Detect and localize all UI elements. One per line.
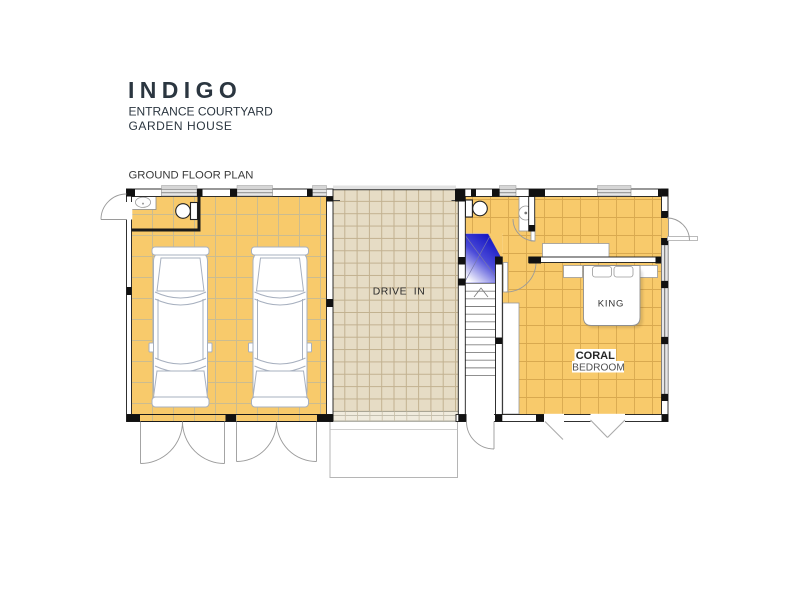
svg-text:KING: KING <box>598 299 624 310</box>
svg-text:GARDEN HOUSE: GARDEN HOUSE <box>129 119 233 133</box>
svg-text:CORAL: CORAL <box>576 350 615 362</box>
svg-text:INDIGO: INDIGO <box>128 77 242 103</box>
svg-text:BEDROOM: BEDROOM <box>572 363 625 374</box>
svg-text:GROUND FLOOR PLAN: GROUND FLOOR PLAN <box>129 170 254 182</box>
svg-text:DRIVE IN: DRIVE IN <box>373 287 425 298</box>
svg-text:ENTRANCE COURTYARD: ENTRANCE COURTYARD <box>129 105 274 119</box>
